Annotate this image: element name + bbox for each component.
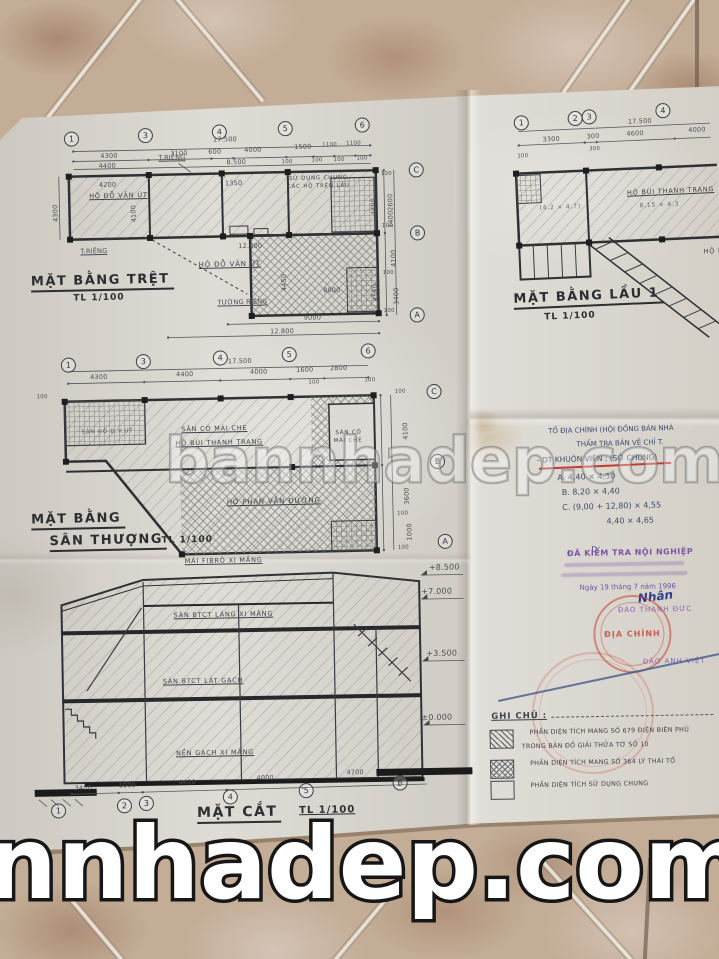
area-label: SÂN HỘ Đ.V.ÚT	[81, 428, 133, 435]
dim-label: 1600	[296, 366, 314, 374]
plan-title: MẶT BẰNG	[31, 511, 125, 531]
legend-title: GHI CHÚ :	[491, 711, 547, 722]
dim-label: 4450	[280, 274, 288, 292]
dim-label: 300	[589, 146, 600, 152]
dim-label: 3400	[75, 784, 92, 792]
dim-label: 100	[333, 157, 344, 163]
legend-item-text: PHẦN DIỆN TÍCH MANG SỐ 364 LÝ THÁI TỔ	[530, 758, 675, 768]
dim-label: 4200	[99, 181, 117, 189]
dim-label: 100	[364, 377, 375, 383]
dim-label: 4300	[100, 152, 118, 160]
plan-ground-floor: 1 3 4 5 6 C B A 17.500 4300 3100 600 400…	[28, 114, 463, 355]
legend-item-text: TRONG BẢN ĐỒ GIẢI THỬA TỜ SỐ 10	[522, 741, 649, 750]
dim-label: 12.600	[238, 242, 262, 250]
wall-label: T.RIÊNG	[80, 247, 107, 256]
dim-label: 100	[398, 545, 409, 551]
dim-label: 1100	[346, 141, 361, 147]
room-label: HỘ P	[703, 247, 719, 256]
wall-label: T.RIÊNG	[158, 153, 185, 162]
legend-swatch-plain	[490, 780, 514, 799]
legend-dashed-rule	[551, 714, 713, 718]
dim-label: 1100	[322, 142, 337, 148]
plan-scale: TL 1/100	[162, 535, 214, 546]
dim-label: 2800	[330, 364, 348, 372]
dim-label: 100	[382, 223, 393, 229]
dim-label: 300	[586, 132, 599, 141]
legend-swatch-crosshatch	[490, 759, 514, 778]
dim-label: 4550	[371, 284, 379, 302]
room-label: HỘ ĐỖ VĂN ÚT	[199, 260, 261, 269]
dim-label: 4000	[256, 774, 273, 782]
stamp-faint-text	[564, 561, 684, 567]
dim-label: 4300	[51, 205, 59, 223]
dim-label: 8800	[323, 286, 341, 294]
elevation-label: +3.500	[426, 648, 457, 658]
tile-grout-line	[157, 0, 265, 104]
dim-label: 1500	[294, 143, 312, 151]
dim-label: 4600	[626, 129, 644, 138]
dim-label: 17.500	[628, 117, 652, 126]
photo-architectural-drawing: 1 3 4 5 6 C B A 17.500 4300 3100 600 400…	[0, 0, 719, 959]
dim-label: 8.500	[226, 158, 246, 166]
dim-label: 9000	[304, 313, 322, 321]
dim-label: 4400	[98, 162, 116, 170]
watermark-bottom: nnhadep.com	[0, 806, 719, 931]
dim-label: 1350	[225, 179, 243, 187]
svg-text:bannhadep.com: bannhadep.com	[165, 424, 719, 497]
plan-floor-1: 1 2 3 4 17.500 3300 300 4600 4000 100 30…	[477, 87, 719, 347]
svg-text:nnhadep.com: nnhadep.com	[0, 806, 719, 922]
elevation-label: +7.000	[421, 587, 452, 597]
tile-grout-line	[42, 0, 155, 124]
plan-section: MÁI FIBRÔ XI MĂNG SÀN BTCT LÁNG XI MĂNG …	[23, 552, 490, 832]
elevation-label: +8.500	[429, 562, 460, 572]
dim-label: 2600	[386, 194, 394, 212]
round-stamp-text: ĐỊA CHÍNH	[595, 629, 669, 639]
wall-label: TƯỜNG RIÊNG	[217, 298, 267, 307]
plan-title: MẶT BẰNG TRỆT	[31, 272, 174, 293]
dim-label: 100	[311, 157, 322, 163]
dim-label: 4000	[250, 368, 268, 376]
material-label: NỀN GẠCH XI MĂNG	[176, 748, 254, 757]
legend-item-text: PHẦN DIỆN TÍCH SỬ DỤNG CHUNG	[530, 780, 648, 789]
room-label: SỬ DỤNG CHUNG	[289, 175, 348, 182]
tile-grout-line	[695, 0, 699, 95]
check-stamp-title: ĐÃ KIỂM TRA NỘI NGHIỆP	[567, 547, 693, 558]
dim-label: 1000	[119, 781, 136, 789]
legend: GHI CHÚ : PHẦN DIỆN TÍCH MANG SỐ 679 ĐIỆ…	[477, 704, 719, 808]
dim-label: 100	[381, 171, 392, 177]
dim-label: 100	[384, 308, 395, 314]
dim-label: 100	[383, 270, 394, 276]
dim-label: 17.500	[228, 357, 252, 365]
dim-label: 4300	[90, 373, 108, 381]
dim-label: 4100	[389, 249, 397, 267]
dim-label: 4400	[369, 198, 377, 216]
elevation-label: ±0.000	[421, 713, 452, 723]
dim-label: 3300	[542, 135, 560, 144]
dim-label: 4700	[346, 768, 363, 776]
dim-label: 1000	[405, 523, 413, 541]
plan-title: SÂN THƯỢNG	[49, 532, 167, 552]
dim-label: 4000	[244, 146, 262, 154]
dim-label: 12.800	[270, 327, 294, 335]
dim-label: 4100	[129, 205, 137, 223]
material-label: MÁI FIBRÔ XI MĂNG	[185, 556, 263, 565]
dim-label: 100	[308, 379, 319, 385]
legend-item-text: PHẦN DIỆN TÍCH MANG SỐ 679 ĐIỆN BIÊN PHỦ	[530, 726, 690, 736]
dim-label: 3400	[392, 287, 400, 305]
dim-label: 100	[517, 153, 528, 159]
dim-label: 4400	[176, 370, 194, 378]
dim-label: 4400	[178, 778, 195, 786]
room-label: HỘ ĐỖ VĂN ÚT	[89, 191, 148, 200]
dim-label: 100	[281, 159, 292, 165]
note-item: 4,40 × 4,65	[606, 516, 654, 526]
watermark-center: bannhadep.com	[160, 418, 719, 513]
dim-label: 100	[394, 389, 405, 395]
dim-label: 100	[37, 394, 48, 400]
plan-scale: TL 1/100	[73, 293, 125, 304]
section-linework	[23, 552, 490, 832]
dim-label: 17.500	[213, 135, 237, 143]
material-label: SÀN BTCT LÁT GẠCH	[163, 676, 244, 685]
dim-label: 4000	[688, 125, 706, 134]
legend-swatch-hatch	[490, 729, 514, 748]
stamp-faint-text	[561, 571, 687, 577]
dim-label: 100	[356, 155, 367, 161]
dim-label: 600	[208, 147, 221, 155]
